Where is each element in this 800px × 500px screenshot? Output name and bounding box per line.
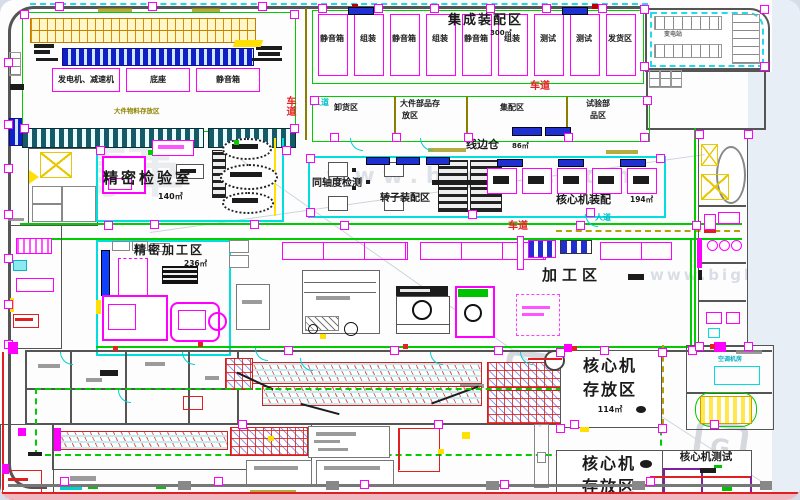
pallet — [348, 7, 374, 15]
column-marker — [150, 220, 159, 229]
press-column — [118, 258, 148, 296]
column-marker — [20, 124, 29, 133]
wall — [764, 68, 766, 130]
column-marker — [4, 210, 13, 219]
assembly-bay-label: 静音箱 — [458, 35, 494, 43]
equip-note — [254, 466, 298, 470]
red-marker — [572, 346, 577, 351]
precision-area: 236㎡ — [184, 260, 207, 268]
red-note — [8, 478, 28, 481]
aisle-note — [606, 150, 638, 154]
column-marker — [148, 2, 157, 11]
column-marker — [692, 221, 701, 230]
label-smudge — [704, 230, 716, 233]
precision-title: 精密加工区 — [134, 244, 204, 256]
cnc-wheel — [308, 324, 318, 334]
column-marker — [290, 124, 299, 133]
column-marker — [20, 10, 29, 19]
door-triangle — [29, 170, 39, 184]
station-part — [633, 176, 649, 184]
column-marker — [318, 4, 327, 13]
cnc-line — [304, 282, 376, 283]
yellow-mark — [438, 449, 444, 454]
column-marker — [282, 146, 291, 155]
column-marker — [330, 133, 339, 142]
column-marker — [430, 4, 439, 13]
room-label-bold — [100, 370, 118, 376]
hvac-label: 空调机房 — [718, 357, 742, 363]
rotor-label: 转子装配区 — [380, 194, 430, 204]
column-marker — [4, 58, 13, 67]
reserved-note — [522, 313, 544, 316]
blue-bar — [101, 250, 110, 296]
workbench — [328, 162, 348, 177]
column-marker — [600, 346, 609, 355]
small-room — [660, 70, 671, 88]
column-marker — [306, 154, 315, 163]
red-frame — [398, 428, 440, 472]
equipment-row — [654, 16, 722, 30]
fixture — [706, 312, 722, 324]
column-marker — [4, 254, 13, 263]
column-base — [326, 481, 339, 490]
toilet-fixture — [707, 240, 718, 251]
assembly-bay-label: 组装 — [422, 35, 458, 43]
hvac-unit — [714, 366, 760, 385]
red-marker — [710, 344, 715, 349]
red-line — [528, 358, 562, 360]
machine-icon — [34, 44, 54, 48]
large-parts-label-2: 放区 — [402, 112, 418, 120]
green-bit — [714, 465, 722, 468]
column-marker — [340, 221, 349, 230]
label-box-base: 底座 — [126, 68, 190, 92]
column-base — [760, 481, 772, 490]
assembly-bay-label: 测试 — [566, 35, 602, 43]
workbench — [328, 196, 348, 211]
column-marker — [284, 346, 293, 355]
red-line — [650, 476, 750, 478]
column-marker — [290, 10, 299, 19]
yellow-mark — [268, 436, 274, 441]
assembly-bench — [282, 242, 408, 260]
area-smudge — [10, 84, 24, 90]
pallet — [396, 157, 420, 165]
machine-dial — [464, 304, 482, 322]
equip-note — [324, 466, 380, 470]
column-marker — [374, 4, 383, 13]
meeting-table — [222, 138, 272, 160]
corridor-cabinet — [236, 284, 270, 330]
column-marker — [710, 420, 719, 429]
core-test-title: 核心机测试 — [662, 452, 750, 463]
column-marker — [640, 62, 649, 71]
fixture — [726, 312, 740, 324]
substation-label: 变电站 — [664, 32, 682, 38]
test-parts-label-2: 品区 — [590, 112, 606, 120]
page-margin — [748, 72, 800, 345]
generator-label: 发电机、减速机 — [58, 76, 114, 84]
column-marker — [744, 342, 753, 351]
station-part — [598, 176, 614, 184]
core-storage-a-line1: 核心机 — [560, 358, 660, 374]
pallet — [497, 159, 523, 167]
black-bar — [28, 452, 42, 456]
room-label-smudge — [86, 378, 102, 382]
kanban-box — [560, 240, 592, 254]
cabinet-note — [242, 300, 262, 304]
column-marker — [390, 346, 399, 355]
page-margin — [774, 345, 800, 500]
column-marker — [576, 221, 585, 230]
table-label-smudge — [232, 198, 258, 203]
column-marker — [640, 133, 649, 142]
column-marker — [760, 62, 769, 71]
wall-divider — [305, 8, 307, 140]
pillar-magenta-fill — [697, 238, 702, 268]
ink-splotch — [636, 406, 646, 413]
wall-bottom — [8, 484, 772, 487]
pallet — [562, 7, 588, 15]
column-base — [178, 481, 191, 490]
door-arc — [420, 138, 433, 151]
column-marker — [55, 2, 64, 11]
room-label-smudge — [38, 364, 60, 368]
toilet-fixture — [719, 240, 730, 251]
cnc-line — [304, 292, 376, 293]
column-base — [486, 481, 499, 490]
column-marker — [360, 480, 369, 489]
assembly-bay — [390, 14, 420, 76]
assembly-bay-label: 组装 — [494, 35, 530, 43]
yellow-mark — [580, 427, 589, 432]
note — [70, 476, 96, 481]
label-box-silentbox: 静音箱 — [196, 68, 260, 92]
pillar-magenta — [517, 236, 524, 270]
inspection-title: 精密检验室 — [103, 171, 193, 186]
operator-dot — [352, 168, 356, 172]
red-note — [15, 318, 33, 321]
column-marker — [96, 146, 105, 155]
column-marker — [570, 420, 579, 429]
cabinet — [32, 204, 62, 222]
toilet-fixture — [731, 240, 742, 251]
column-marker — [744, 130, 753, 139]
column-marker — [494, 346, 503, 355]
pallet — [512, 127, 542, 136]
machining-title: 加工区 — [542, 268, 602, 283]
red-line — [398, 428, 400, 470]
green-dot — [148, 150, 153, 155]
inspection-area: 140㎡ — [158, 193, 183, 201]
assembly-title: 集成装配区 — [448, 14, 523, 27]
column-marker — [238, 420, 247, 429]
machine-icon — [36, 58, 58, 61]
label-box-generator: 发电机、减速机 — [52, 68, 120, 92]
magenta-block — [18, 428, 26, 436]
fixture-cyan — [708, 328, 720, 338]
column-marker — [258, 2, 267, 11]
assembly-bay-label: 组装 — [350, 35, 386, 43]
cnc-note — [316, 296, 350, 300]
small-room — [649, 70, 660, 88]
door — [698, 270, 702, 280]
operator-dot — [352, 186, 356, 190]
station-part — [528, 176, 544, 184]
base-label: 底座 — [150, 76, 166, 84]
pallet — [426, 157, 450, 165]
column-marker — [486, 4, 495, 13]
cabinet — [62, 186, 96, 222]
machine-green-bar — [458, 289, 488, 297]
magenta-block — [8, 342, 18, 354]
column-marker — [695, 342, 704, 351]
lift-shaft — [40, 152, 72, 178]
equip-box — [246, 460, 312, 486]
bench-small — [112, 241, 130, 251]
reserved-note — [522, 306, 550, 309]
column-marker — [4, 120, 13, 129]
corridor-box — [229, 240, 249, 253]
door-arc — [255, 348, 268, 361]
door-arc — [350, 138, 363, 151]
column-marker — [4, 300, 13, 309]
machine-icon — [252, 58, 282, 61]
yellow-mark — [320, 334, 326, 339]
column-marker — [4, 164, 13, 173]
column-marker — [695, 130, 704, 139]
test-parts-label-1: 试验部 — [586, 100, 610, 108]
cnc-wheel — [344, 322, 358, 336]
control-box — [162, 266, 198, 284]
ink-splotch — [640, 460, 652, 468]
column-marker — [542, 4, 551, 13]
core-assembly-label: 核心机装配 — [556, 194, 611, 205]
column-marker — [214, 477, 223, 486]
yellow-rack-row — [30, 30, 256, 43]
toilet-stall — [718, 212, 740, 224]
rack — [438, 160, 468, 212]
staircase — [700, 396, 752, 424]
column-marker — [60, 477, 69, 486]
door-arc — [182, 352, 195, 365]
line-side-area: 86㎡ — [512, 143, 529, 150]
wall — [698, 262, 746, 264]
lane-label-top: 车道 — [530, 82, 550, 92]
column-marker — [598, 4, 607, 13]
lift-shaft — [701, 174, 729, 200]
toilet-stall — [704, 214, 716, 230]
test-note — [700, 468, 716, 473]
assembly-bay — [318, 14, 348, 76]
red-marker — [113, 346, 118, 351]
column-marker — [564, 133, 573, 142]
column-marker — [646, 477, 655, 486]
blue-rack-row — [62, 48, 254, 66]
assembly-bench — [600, 242, 672, 260]
vent-grill — [16, 238, 52, 254]
column-marker — [434, 420, 443, 429]
assembly-bay — [354, 14, 384, 76]
column-marker — [250, 220, 259, 229]
room-label-smudge — [145, 362, 165, 366]
storage-note: 大件物料存放区 — [114, 108, 160, 115]
door-arc — [60, 352, 73, 365]
aisle-note — [428, 148, 466, 152]
column-marker — [306, 208, 315, 217]
wall — [698, 300, 746, 302]
pallet — [558, 159, 584, 167]
assembly-bay — [534, 14, 564, 76]
magenta-block — [714, 342, 726, 352]
lane-label-mid: 车道 — [508, 222, 528, 232]
core-storage-a-line2: 存放区 — [560, 382, 660, 398]
assembly-bay — [570, 14, 600, 76]
wall-green — [694, 128, 696, 345]
wall — [698, 205, 746, 207]
red-marker — [198, 342, 203, 347]
kanban-box — [528, 240, 556, 258]
room-label-smudge — [205, 376, 219, 380]
meeting-table — [222, 192, 274, 214]
cyan-note — [60, 487, 82, 490]
silentbox-label: 静音箱 — [216, 76, 240, 84]
lift-shaft — [701, 144, 718, 166]
machine-icon — [34, 50, 50, 54]
machine-base — [396, 324, 450, 334]
conveyor-line — [58, 431, 228, 450]
column-marker — [760, 5, 769, 14]
column-marker — [464, 133, 473, 142]
machining-area-smudge — [628, 274, 644, 280]
column-base — [632, 481, 645, 490]
column-marker — [658, 348, 667, 357]
column-marker — [586, 208, 595, 217]
press-inner — [108, 304, 136, 330]
cyan-box — [13, 260, 27, 271]
machine-head-note — [400, 289, 430, 292]
assembly-bay-label: 测试 — [530, 35, 566, 43]
column-marker — [556, 424, 565, 433]
small-room — [671, 70, 682, 88]
red-marker — [403, 344, 408, 349]
kitting-label: 集配区 — [500, 104, 524, 112]
pallet — [620, 159, 646, 167]
factory-floor-plan: www.biglss.com www.biglss.com 博革 G 博革 G … — [0, 0, 800, 500]
label-smudge — [158, 145, 184, 149]
corridor-box — [229, 255, 249, 268]
equipment-row — [654, 44, 722, 58]
large-parts-label-1: 大件部品存 — [400, 100, 440, 108]
pink-band — [0, 494, 800, 500]
fixture — [16, 278, 54, 292]
column-marker — [392, 133, 401, 142]
aisle-dashed-v — [662, 345, 664, 425]
wall-cyan — [96, 148, 98, 222]
pallet-grid — [230, 427, 308, 456]
column-marker — [310, 96, 319, 105]
station-part — [493, 176, 509, 184]
round-machine-inner — [178, 310, 206, 330]
table-label-smudge — [230, 172, 262, 177]
conveyor-line — [230, 362, 482, 384]
machine-icon — [258, 52, 280, 56]
station-part — [563, 176, 579, 184]
assembly-bay-label: 静音箱 — [314, 35, 350, 43]
equipment-col — [732, 14, 760, 64]
column-marker — [643, 96, 652, 105]
cabinet — [32, 186, 62, 204]
assembly-bay — [606, 14, 636, 76]
column-marker — [104, 221, 113, 230]
meeting-table — [220, 164, 278, 190]
column-marker — [656, 154, 665, 163]
yellow-door — [96, 300, 101, 314]
wall-green — [690, 238, 692, 348]
core-assembly-area: 194㎡ — [630, 196, 653, 204]
pallet — [366, 157, 390, 165]
red-cabinet — [13, 314, 39, 328]
column-marker — [500, 480, 509, 489]
magenta-block — [564, 344, 572, 352]
machine-dial — [412, 300, 432, 320]
lane-label-vertical: 车道 — [284, 96, 294, 116]
equip-note — [318, 448, 348, 451]
assembly-bay-label: 发货区 — [602, 35, 638, 43]
column-marker — [640, 5, 649, 14]
assembly-bay-label: 静音箱 — [386, 35, 422, 43]
magenta-block — [2, 464, 9, 474]
yellow-highlight — [233, 40, 264, 47]
yellow-mark — [462, 432, 470, 439]
equip-note — [316, 432, 356, 436]
pillar-core — [537, 452, 546, 463]
column-marker — [658, 424, 667, 433]
conveyor-cap — [54, 428, 61, 451]
operator-dot — [366, 180, 370, 184]
green-bit — [722, 487, 732, 491]
utility-line — [30, 3, 648, 5]
column-marker — [468, 210, 477, 219]
round-machine-wheel — [208, 312, 227, 331]
equip-note — [314, 440, 340, 443]
corridor-line — [20, 223, 742, 225]
green-dot — [234, 140, 239, 145]
unloading-label: 卸货区 — [334, 104, 358, 112]
